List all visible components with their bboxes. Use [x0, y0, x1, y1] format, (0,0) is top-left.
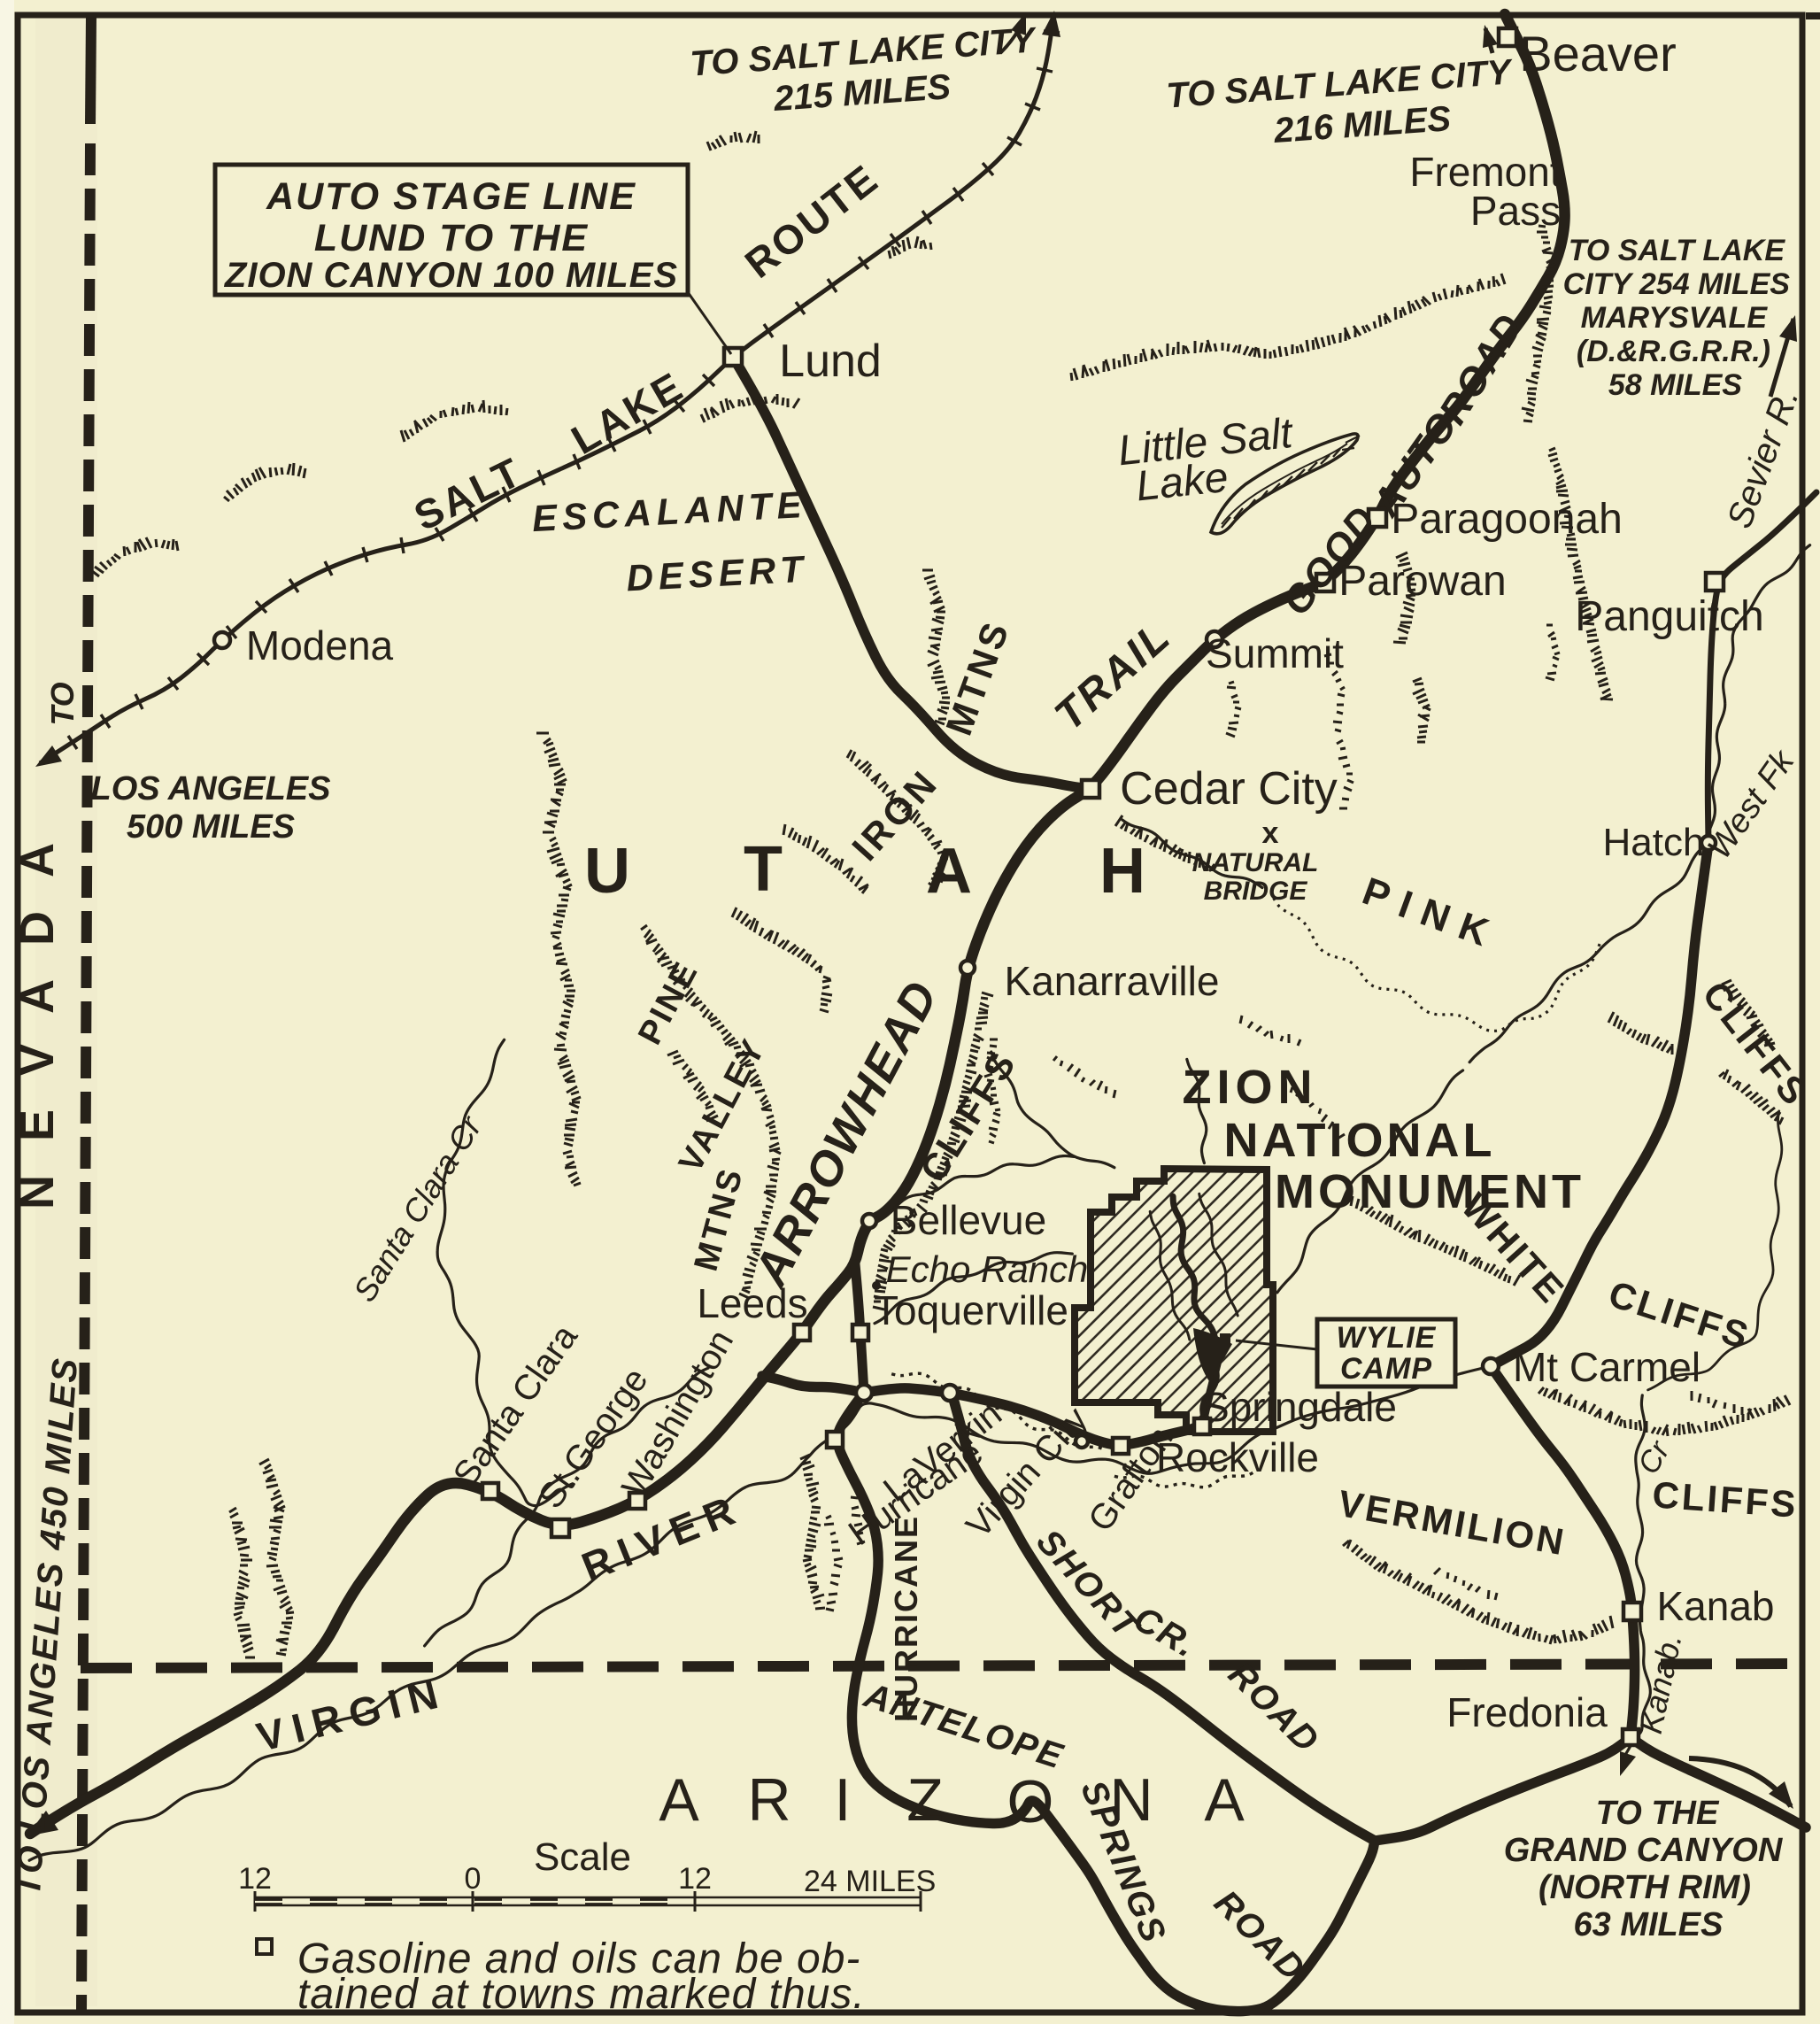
svg-text:Echo Ranch: Echo Ranch	[886, 1248, 1089, 1290]
svg-text:MONUMENT: MONUMENT	[1275, 1165, 1585, 1218]
svg-text:Kanab: Kanab	[1656, 1583, 1774, 1629]
svg-text:T: T	[744, 834, 783, 905]
svg-text:Lake: Lake	[1134, 454, 1230, 511]
svg-text:Paragoonah: Paragoonah	[1391, 496, 1623, 543]
svg-text:CAMP: CAMP	[1340, 1352, 1432, 1386]
svg-text:Beaver: Beaver	[1519, 26, 1676, 81]
svg-text:Summit: Summit	[1206, 630, 1344, 676]
svg-text:GRAND CANYON: GRAND CANYON	[1504, 1832, 1784, 1869]
svg-text:NEVADA: NEVADA	[11, 809, 64, 1209]
svg-text:58 MILES: 58 MILES	[1608, 368, 1742, 402]
svg-text:H: H	[1099, 836, 1145, 907]
svg-text:x: x	[1262, 816, 1279, 850]
svg-text:O: O	[1007, 1768, 1054, 1835]
svg-text:Toquerville: Toquerville	[874, 1287, 1068, 1333]
svg-text:MARYSVALE: MARYSVALE	[1581, 301, 1769, 335]
svg-text:Kanarraville: Kanarraville	[1005, 958, 1220, 1004]
svg-text:Leeds: Leeds	[697, 1280, 807, 1326]
svg-text:Panguitch: Panguitch	[1575, 593, 1764, 640]
svg-text:Fredonia: Fredonia	[1446, 1689, 1608, 1735]
svg-text:500 MILES: 500 MILES	[127, 808, 295, 846]
svg-text:63 MILES: 63 MILES	[1574, 1906, 1724, 1943]
svg-text:Pass: Pass	[1470, 188, 1561, 234]
svg-text:Cedar City: Cedar City	[1120, 763, 1338, 815]
svg-text:Hatch: Hatch	[1603, 821, 1705, 864]
svg-text:Bellevue: Bellevue	[891, 1197, 1046, 1243]
svg-text:(D.&R.G.R.R.): (D.&R.G.R.R.)	[1577, 335, 1770, 368]
svg-text:ZION CANYON 100 MILES: ZION CANYON 100 MILES	[224, 256, 678, 295]
svg-text:R: R	[747, 1766, 790, 1834]
svg-text:Modena: Modena	[246, 622, 394, 668]
svg-text:(NORTH RIM): (NORTH RIM)	[1539, 1869, 1751, 1906]
svg-text:Springdale: Springdale	[1202, 1384, 1397, 1430]
svg-text:Parowan: Parowan	[1338, 558, 1506, 605]
svg-text:I: I	[835, 1766, 852, 1834]
svg-text:24 MILES: 24 MILES	[804, 1865, 936, 1898]
svg-text:U: U	[584, 836, 630, 907]
svg-text:0: 0	[465, 1862, 482, 1896]
svg-text:Scale: Scale	[534, 1835, 631, 1879]
svg-text:WYLIE: WYLIE	[1337, 1321, 1437, 1355]
svg-text:LOS ANGELES: LOS ANGELES	[91, 770, 331, 807]
svg-text:tained at towns marked thus.: tained at towns marked thus.	[297, 1971, 866, 2018]
svg-text:NATURAL: NATURAL	[1192, 848, 1319, 877]
svg-text:12: 12	[238, 1862, 272, 1896]
svg-text:12: 12	[678, 1862, 712, 1896]
svg-text:Mt Carmel: Mt Carmel	[1513, 1344, 1700, 1390]
svg-text:A: A	[926, 836, 972, 907]
svg-text:CITY 254 MILES: CITY 254 MILES	[1563, 267, 1791, 301]
svg-text:Z: Z	[906, 1766, 944, 1834]
svg-text:TO THE: TO THE	[1596, 1795, 1720, 1832]
svg-text:A: A	[659, 1766, 699, 1834]
svg-text:Rockville: Rockville	[1156, 1434, 1319, 1480]
svg-text:LUND TO THE: LUND TO THE	[314, 217, 589, 259]
svg-text:AUTO STAGE LINE: AUTO STAGE LINE	[266, 175, 636, 218]
svg-text:TO: TO	[44, 682, 81, 725]
svg-text:A: A	[1204, 1766, 1245, 1834]
svg-text:Lund: Lund	[779, 336, 882, 387]
svg-text:NATIONAL: NATIONAL	[1224, 1114, 1496, 1167]
svg-text:TO SALT LAKE: TO SALT LAKE	[1569, 234, 1786, 267]
svg-text:BRIDGE: BRIDGE	[1204, 877, 1308, 906]
svg-text:ZION: ZION	[1183, 1061, 1318, 1114]
